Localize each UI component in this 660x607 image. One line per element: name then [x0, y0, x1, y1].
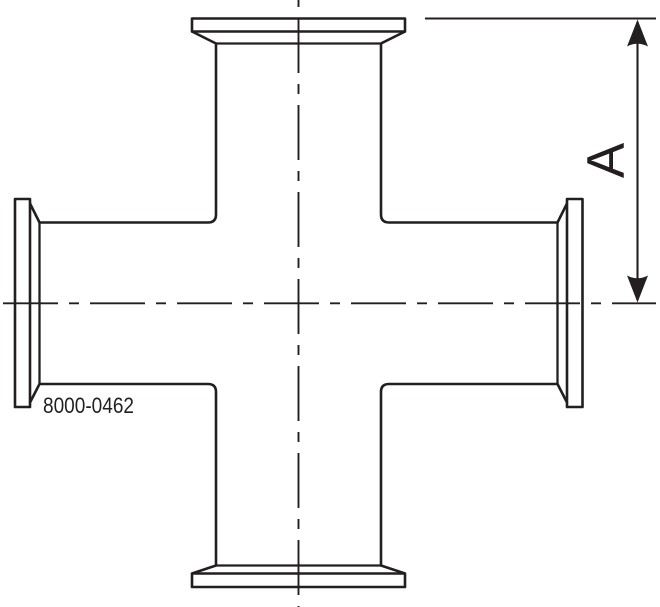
dimension-arrow-up-icon — [627, 20, 648, 47]
dimension-A: A — [425, 19, 656, 303]
part-number: 8000-0462 — [43, 393, 134, 418]
dimension-arrow-down-icon — [627, 276, 648, 303]
cross-fitting-drawing: A 8000-0462 — [0, 0, 660, 607]
body-contour-bottom-right — [381, 384, 567, 574]
body-contour-top-left — [30, 32, 216, 223]
dimension-label: A — [577, 142, 636, 178]
technical-drawing-canvas: A 8000-0462 — [0, 0, 660, 607]
body-contour-top-right — [381, 32, 567, 223]
